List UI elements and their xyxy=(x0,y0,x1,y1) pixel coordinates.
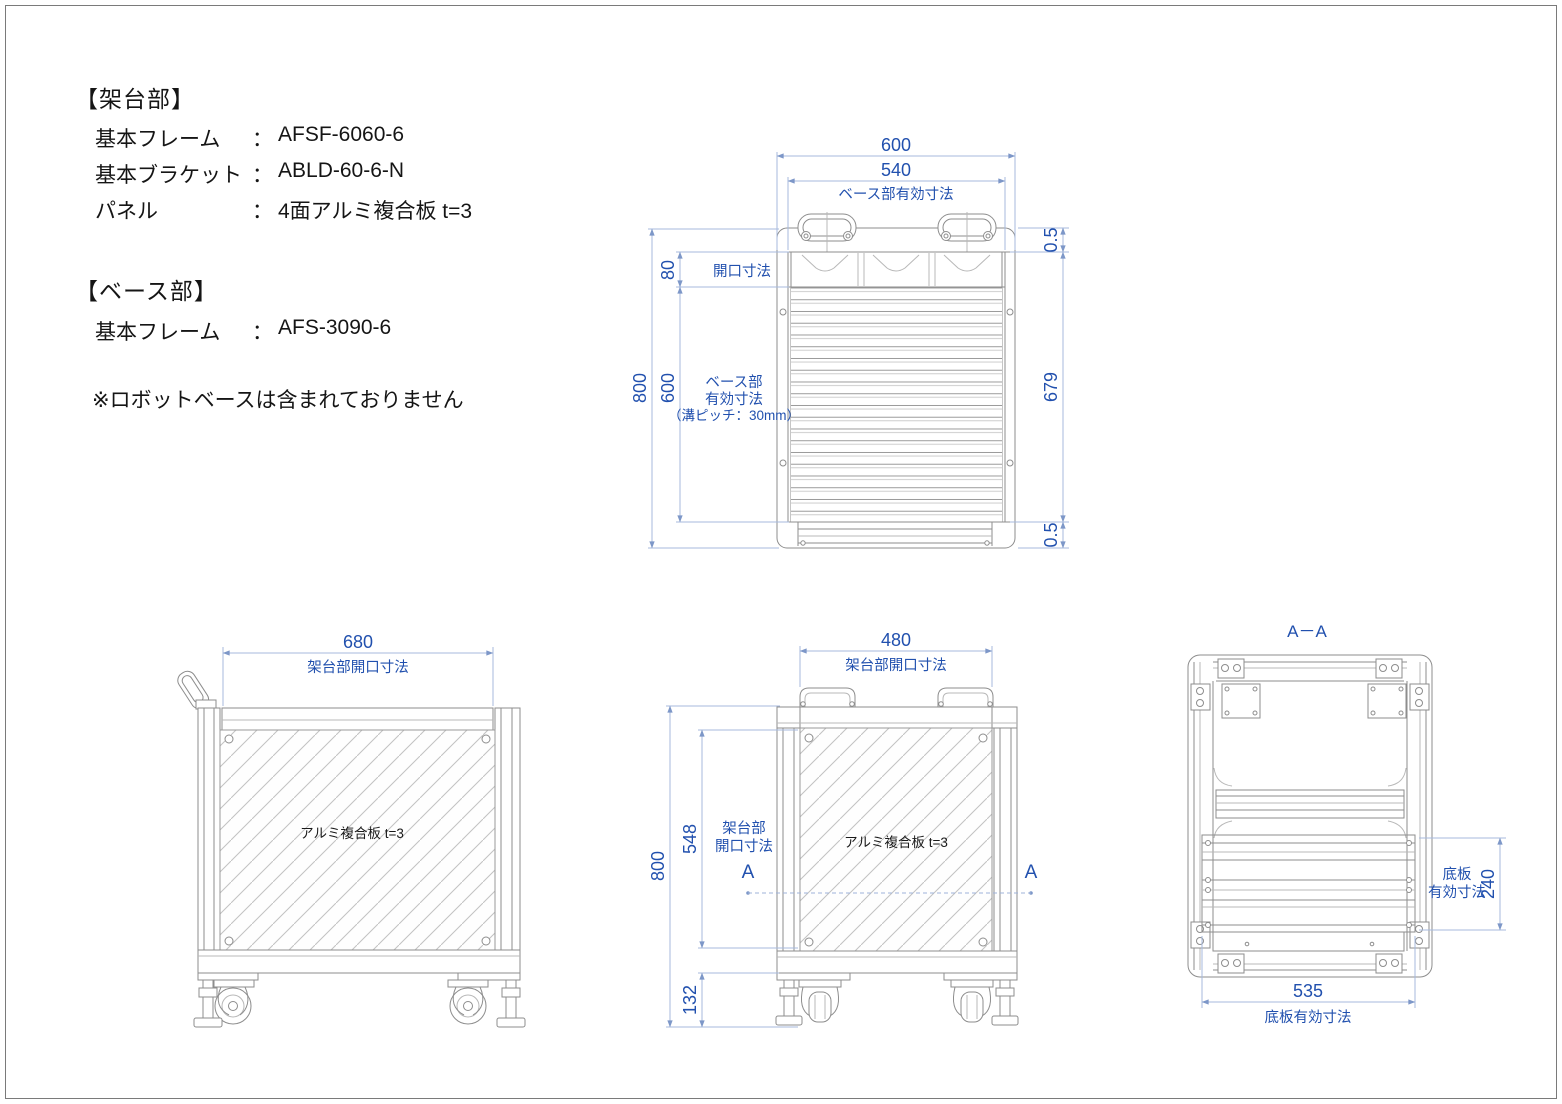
front-view-body xyxy=(776,688,1018,1025)
label-groove-pitch: （溝ピッチ：30mm） xyxy=(668,408,800,423)
label-base-1: ベース部 xyxy=(705,374,762,391)
top-view: 600 540 ベース部有効寸法 800 80 開口寸法 600 xyxy=(630,135,1069,548)
dim-548: 548 xyxy=(680,824,700,854)
label-bottom-plate: 底板有効寸法 xyxy=(1265,1008,1352,1026)
caster-icon xyxy=(214,980,254,1024)
caster-icon xyxy=(448,980,488,1024)
dim-132: 132 xyxy=(680,985,700,1015)
label-bottom-plate-1: 底板 xyxy=(1443,865,1472,883)
label-base-effective: ベース部有効寸法 xyxy=(838,186,953,203)
dim-800: 800 xyxy=(648,851,668,881)
dim-535: 535 xyxy=(1293,981,1323,1001)
dim-679: 679 xyxy=(1041,372,1061,402)
front-view: 480 架台部開口寸法 800 548 架台部 開口寸法 132 A A xyxy=(648,630,1038,1027)
adjuster-foot-icon xyxy=(776,980,802,1025)
caster-icon xyxy=(799,980,841,1022)
section-mark-a-left: A xyxy=(742,862,755,883)
side-view-body xyxy=(175,668,525,1027)
section-view-title: A－A xyxy=(1287,622,1327,641)
handle-icon xyxy=(938,688,993,707)
dim-540: 540 xyxy=(881,160,911,180)
dim-80: 80 xyxy=(658,260,678,280)
label-base-2: 有効寸法 xyxy=(705,391,763,408)
side-view: 680 架台部開口寸法 アルミ複合板 t=3 xyxy=(175,632,525,1027)
dim-680: 680 xyxy=(343,632,373,652)
dim-05-bottom: 0.5 xyxy=(1041,522,1061,547)
panel-material-label: アルミ複合板 t=3 xyxy=(844,834,948,850)
label-opening-1: 架台部 xyxy=(722,820,766,837)
label-frame-opening: 架台部開口寸法 xyxy=(307,659,409,676)
dim-05-top: 0.5 xyxy=(1041,227,1061,252)
dim-480: 480 xyxy=(881,630,911,650)
adjuster-foot-icon xyxy=(992,980,1018,1025)
drawing-sheet: 【架台部】 基本フレーム ： AFSF-6060-6 基本ブラケット ： ABL… xyxy=(0,0,1562,1104)
label-opening-2: 開口寸法 xyxy=(715,838,773,855)
drawing-views: 600 540 ベース部有効寸法 800 80 開口寸法 600 xyxy=(0,0,1562,1104)
dim-600: 600 xyxy=(881,135,911,155)
section-view-body xyxy=(1188,655,1432,977)
section-view: A－A xyxy=(1188,622,1506,1026)
adjuster-foot-icon xyxy=(497,980,525,1027)
top-view-body xyxy=(777,212,1015,548)
caster-icon xyxy=(951,980,993,1022)
section-mark-a-right: A xyxy=(1025,862,1038,883)
dim-600-left: 600 xyxy=(658,373,678,403)
label-frame-opening: 架台部開口寸法 xyxy=(845,657,947,674)
handle-icon xyxy=(800,688,855,707)
panel-material-label: アルミ複合板 t=3 xyxy=(300,825,404,841)
label-bottom-plate-2: 有効寸法 xyxy=(1428,884,1486,901)
dim-800: 800 xyxy=(630,373,650,403)
label-opening: 開口寸法 xyxy=(713,263,771,280)
